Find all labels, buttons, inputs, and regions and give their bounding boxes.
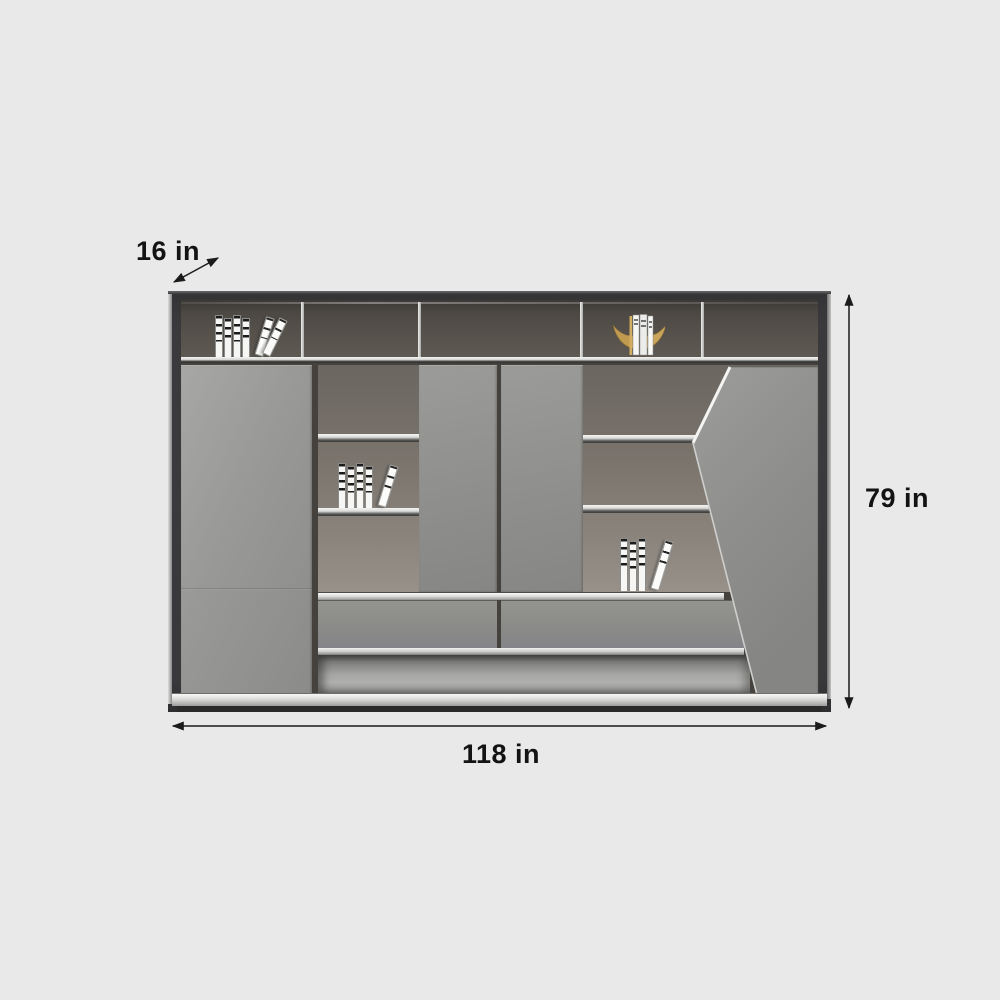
base-shadow-strip [177,706,822,712]
frame-bevel-left [168,291,172,704]
cabinet [168,291,831,712]
frame-bevel-right [827,291,831,699]
plinth-base-trim [172,693,827,706]
depth-dimension-label: 16 in [122,236,214,267]
height-dimension-label: 79 in [851,483,943,514]
frame-bevel-top [168,291,831,294]
slanted-accent-panel [168,291,831,712]
product-dimension-diagram: 16 in 79 in 118 in [0,0,1000,1000]
width-dimension-label: 118 in [451,739,551,770]
